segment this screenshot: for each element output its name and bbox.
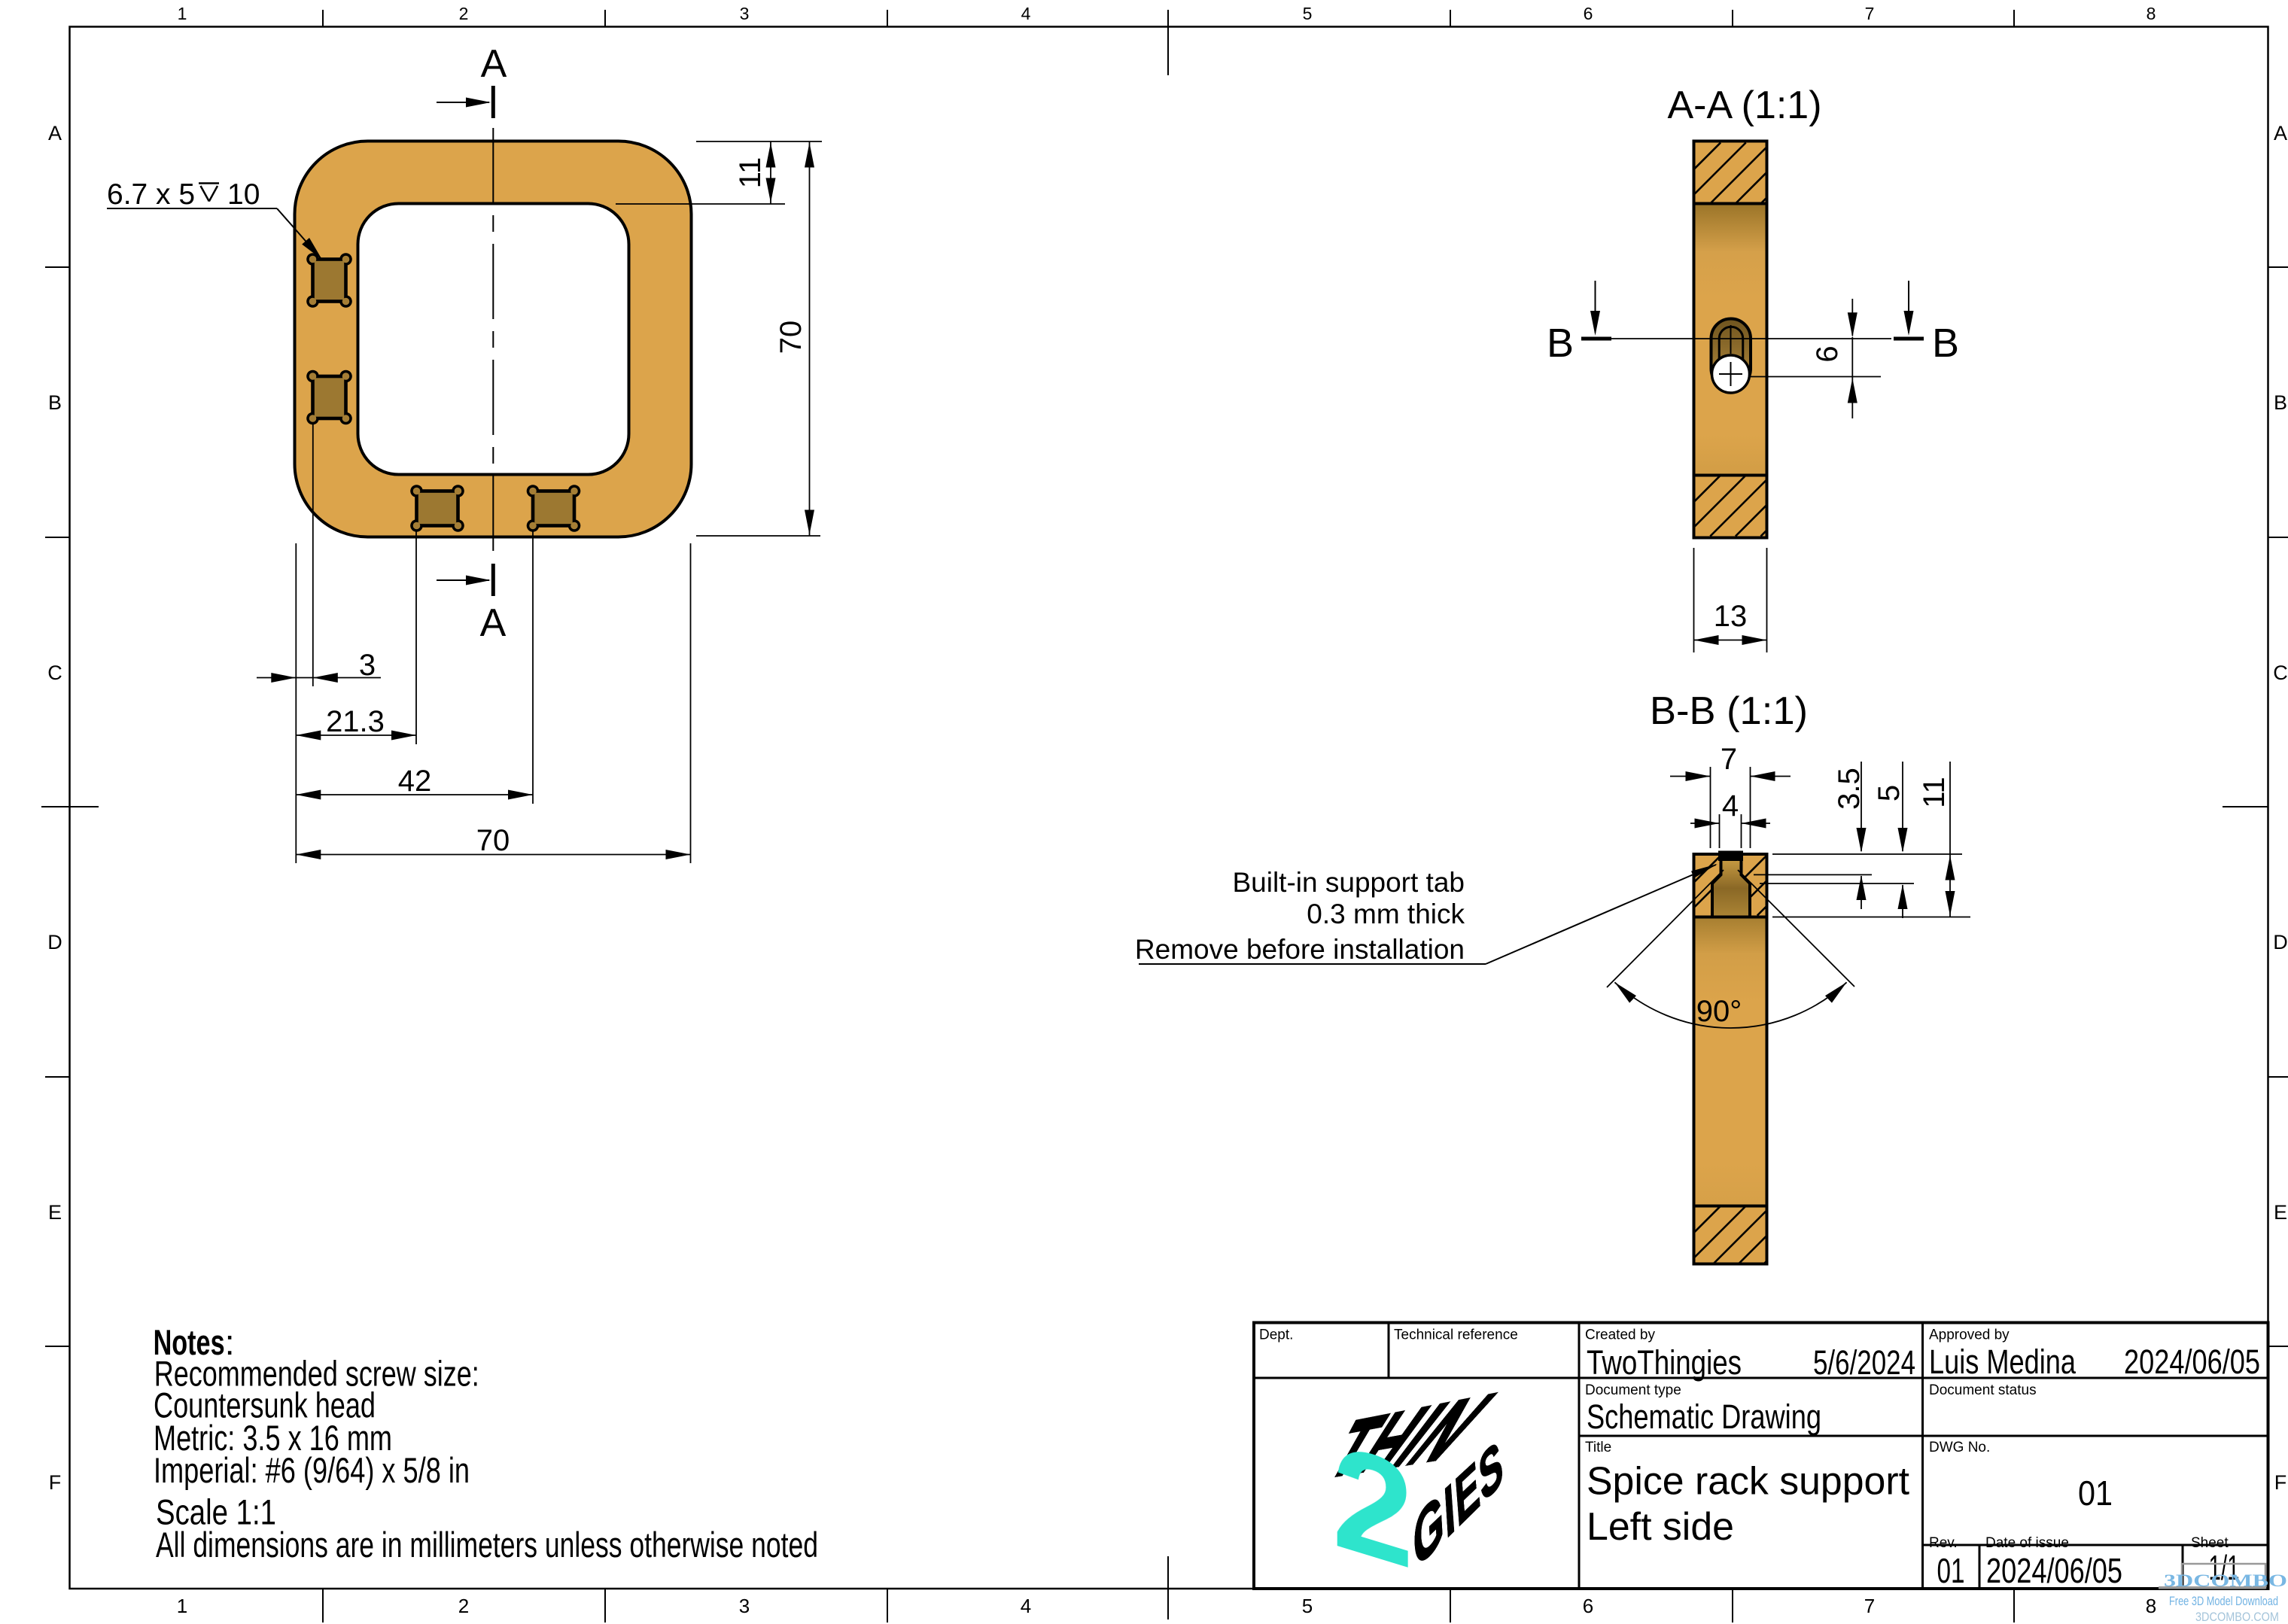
svg-text:Date of issue: Date of issue: [1985, 1535, 2069, 1551]
svg-text:Remove before installation: Remove before installation: [1135, 934, 1465, 965]
svg-text:6: 6: [1811, 345, 1844, 362]
svg-text:6: 6: [1583, 1595, 1593, 1617]
svg-text:Luis Medina: Luis Medina: [1929, 1343, 2077, 1381]
svg-text:4: 4: [1021, 1595, 1031, 1617]
svg-text:70: 70: [774, 321, 808, 354]
svg-text:E: E: [2274, 1201, 2287, 1224]
svg-text:Free 3D Model Download: Free 3D Model Download: [2169, 1594, 2278, 1608]
svg-text:7: 7: [1864, 1595, 1875, 1617]
svg-text:Approved by: Approved by: [1929, 1327, 2010, 1343]
svg-text:B: B: [1932, 321, 1959, 366]
svg-text:B: B: [2274, 391, 2287, 414]
svg-text:1: 1: [177, 1595, 187, 1617]
svg-text:Spice rack support: Spice rack support: [1587, 1460, 1910, 1504]
svg-text:B: B: [1547, 321, 1574, 366]
svg-text:10: 10: [227, 178, 260, 211]
svg-text:3DCOMBO.COM: 3DCOMBO.COM: [2195, 1610, 2279, 1624]
svg-text:3DCOMBO: 3DCOMBO: [2164, 1571, 2287, 1590]
svg-text:21.3: 21.3: [326, 705, 385, 738]
svg-text:A: A: [481, 42, 507, 86]
svg-text:Schematic Drawing: Schematic Drawing: [1587, 1397, 1821, 1436]
svg-text:6.7 x 5: 6.7 x 5: [107, 178, 195, 211]
svg-text:5: 5: [1303, 4, 1313, 23]
svg-text:0.3 mm thick: 0.3 mm thick: [1307, 899, 1465, 929]
svg-text:42: 42: [398, 765, 432, 798]
svg-text:11: 11: [734, 157, 767, 189]
svg-text:5: 5: [1873, 785, 1906, 801]
svg-text:01: 01: [1937, 1551, 1965, 1590]
svg-text:5: 5: [1302, 1595, 1313, 1617]
svg-text:Technical reference: Technical reference: [1394, 1327, 1518, 1343]
svg-text:Title: Title: [1585, 1440, 1611, 1455]
svg-text:7: 7: [1865, 4, 1875, 23]
svg-text:DWG No.: DWG No.: [1929, 1440, 1990, 1455]
svg-text:5/6/2024: 5/6/2024: [1813, 1343, 1915, 1382]
svg-text:Built-in support tab: Built-in support tab: [1232, 867, 1465, 898]
svg-text:90°: 90°: [1696, 995, 1742, 1028]
svg-text:A: A: [2274, 122, 2287, 144]
svg-text:11: 11: [1918, 777, 1951, 808]
svg-text:Imperial: #6 (9/64) x 5/8 in: Imperial: #6 (9/64) x 5/8 in: [154, 1450, 470, 1490]
svg-text:A-A (1:1): A-A (1:1): [1668, 84, 1822, 127]
svg-text:3.5: 3.5: [1833, 768, 1866, 810]
svg-text:A: A: [48, 122, 62, 144]
svg-text:13: 13: [1714, 600, 1748, 633]
svg-text:B: B: [48, 391, 62, 414]
svg-text:TwoThingies: TwoThingies: [1587, 1343, 1742, 1382]
svg-text:D: D: [47, 931, 62, 953]
svg-text:Document type: Document type: [1585, 1382, 1681, 1398]
svg-text:Created by: Created by: [1585, 1327, 1655, 1343]
svg-text:70: 70: [476, 824, 510, 857]
svg-text:B-B (1:1): B-B (1:1): [1650, 689, 1808, 733]
svg-text:A: A: [480, 601, 507, 645]
svg-text:2: 2: [458, 1595, 469, 1617]
svg-text:7: 7: [1721, 743, 1737, 776]
svg-text:F: F: [2274, 1471, 2287, 1494]
svg-text:8: 8: [2147, 4, 2156, 23]
svg-text:3: 3: [359, 649, 376, 682]
svg-text:Document status: Document status: [1929, 1382, 2037, 1398]
svg-text:6: 6: [1584, 4, 1593, 23]
svg-text:Rev.: Rev.: [1929, 1535, 1958, 1551]
svg-text:8: 8: [2146, 1595, 2156, 1617]
svg-text:C: C: [47, 661, 62, 684]
svg-text:3: 3: [740, 4, 750, 23]
svg-text:E: E: [48, 1201, 62, 1224]
svg-text:2024/06/05: 2024/06/05: [1986, 1551, 2122, 1590]
svg-text:4: 4: [1722, 789, 1739, 823]
svg-text:C: C: [2273, 661, 2288, 684]
svg-text:2024/06/05: 2024/06/05: [2124, 1343, 2260, 1381]
svg-text:3: 3: [739, 1595, 750, 1617]
svg-text:01: 01: [2078, 1473, 2113, 1513]
svg-text:2: 2: [459, 4, 469, 23]
svg-text:Dept.: Dept.: [1259, 1327, 1293, 1343]
svg-text:F: F: [49, 1471, 62, 1494]
svg-text:1: 1: [178, 4, 187, 23]
svg-text:4: 4: [1021, 4, 1031, 23]
svg-text:D: D: [2273, 931, 2288, 953]
svg-text:Left side: Left side: [1587, 1505, 1734, 1549]
svg-text:All dimensions are in millimet: All dimensions are in millimeters unless…: [156, 1525, 818, 1565]
